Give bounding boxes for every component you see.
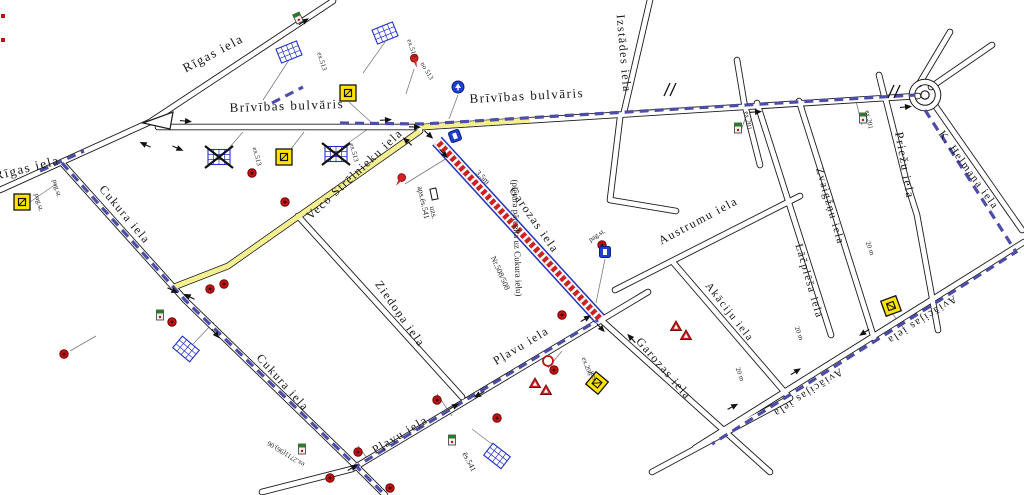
direction-arrow-icon xyxy=(726,401,739,412)
sign-leader-line xyxy=(405,158,447,184)
red-circle-icon xyxy=(220,280,228,288)
small-label: ex.513 xyxy=(251,146,264,167)
red-circle-icon xyxy=(558,311,566,319)
red-triangle-icon xyxy=(541,385,552,395)
bus-table-icon xyxy=(276,41,302,63)
red-pin-icon xyxy=(393,172,407,188)
mini-sign-icon xyxy=(735,123,742,133)
blue-square-icon xyxy=(448,129,462,143)
small-label: ex.513 xyxy=(405,38,419,59)
bus-table-icon xyxy=(173,336,199,362)
red-sq-icon xyxy=(1,14,5,18)
sign-leader-line xyxy=(349,102,373,124)
red-circle-icon xyxy=(493,414,501,422)
tick-icon xyxy=(664,83,676,96)
street-label: Cukura iela xyxy=(254,351,313,414)
bus-table-crossed-icon xyxy=(322,143,350,165)
mini-sign-icon xyxy=(299,444,306,454)
yellow-sign-icon xyxy=(14,194,30,210)
sign-leader-line xyxy=(263,60,289,100)
bus-table-icon xyxy=(484,443,511,468)
street-label: Brīvības bulvāris xyxy=(469,85,584,106)
small-label: ex.201 xyxy=(863,110,874,130)
direction-arrow-icon xyxy=(422,128,435,141)
bus-table-crossed-icon xyxy=(205,146,233,168)
small-label: ex.513 xyxy=(348,142,361,163)
red-circle-icon xyxy=(326,474,334,482)
small-label: aps.ēs.541 xyxy=(416,185,432,219)
yellow-sign-icon xyxy=(881,296,902,317)
blue-circle-icon xyxy=(452,81,464,93)
red-circle-icon xyxy=(60,350,68,358)
direction-arrow-icon xyxy=(171,143,184,153)
sign-leader-line xyxy=(596,259,605,303)
red-triangle-icon xyxy=(530,378,541,388)
red-circle-icon xyxy=(206,285,214,293)
uzs-box-icon xyxy=(430,188,438,200)
red-circle-icon xyxy=(168,318,176,326)
mini-sign-icon xyxy=(293,12,304,24)
red-triangle-icon xyxy=(671,321,682,331)
street-label: Lāčplēša iela xyxy=(792,242,825,320)
street-label: Zvaigžņu iela xyxy=(813,166,846,246)
sign-leader-line xyxy=(229,132,243,148)
street-name-labels: Rīgas ielaRīgas ielaBrīvības bulvārisBrī… xyxy=(0,14,1001,473)
street-label: Garozas iela xyxy=(633,334,695,402)
mini-sign-icon xyxy=(449,435,456,445)
street-label: Austrumu iela xyxy=(656,194,740,248)
small-label: ex.201 xyxy=(742,111,753,131)
yellow-sign-icon xyxy=(276,149,292,165)
red-circle-icon xyxy=(248,169,256,177)
sign-leader-line xyxy=(291,132,304,149)
sign-leader-line xyxy=(70,336,96,351)
small-label: ēs.541 xyxy=(460,451,478,473)
street-label: K. Helmaņa iela xyxy=(936,129,1001,212)
sign-leader-line xyxy=(363,42,385,73)
street-label: Veco Strēlnieku iela xyxy=(303,126,405,223)
small-label: pag.st. xyxy=(33,193,46,213)
small-label: ex.513 xyxy=(315,51,329,72)
red-triangle-icon xyxy=(681,330,692,340)
street-label: Priežu iela xyxy=(892,131,918,200)
red-sq-icon xyxy=(1,38,5,42)
street-label: Izstādes iela xyxy=(614,14,635,93)
blue-square-icon xyxy=(600,247,611,258)
small-label: pag.st. xyxy=(51,179,64,199)
sign-leader-line xyxy=(406,69,414,94)
small-label: Nr.508/508 xyxy=(489,255,512,292)
detour-route-dashes xyxy=(40,87,1016,494)
red-circle-icon xyxy=(386,484,394,492)
street-label: Ziedoņa iela xyxy=(372,278,428,350)
small-label: no 513 xyxy=(418,61,435,82)
red-ring-icon xyxy=(543,356,553,366)
red-circle-icon xyxy=(354,448,362,456)
small-label: 20 m xyxy=(864,240,877,257)
red-circle-icon xyxy=(281,198,289,206)
red-circle-icon xyxy=(433,396,441,404)
direction-arrow-icon xyxy=(900,103,912,110)
street-map-canvas: Rīgas ielaRīgas ielaBrīvības bulvārisBrī… xyxy=(0,0,1024,495)
street-label: Akāciju iela xyxy=(703,280,756,344)
direction-arrow-icon xyxy=(789,366,802,378)
street-label: Pļavu iela xyxy=(369,412,430,456)
street-map-svg: Rīgas ielaRīgas ielaBrīvības bulvārisBrī… xyxy=(0,0,1024,495)
sign-leader-line xyxy=(449,95,458,119)
mini-sign-icon xyxy=(157,310,164,320)
traffic-signs xyxy=(1,12,901,492)
street-label: Brīvības bulvāris xyxy=(229,96,344,115)
bus-table-icon xyxy=(372,22,398,44)
red-circle-icon xyxy=(550,366,558,374)
direction-arrow-icon xyxy=(138,139,151,150)
direction-arrow-icon xyxy=(180,118,192,125)
small-label: 20 m xyxy=(793,325,806,342)
small-label: 20 m xyxy=(734,366,747,383)
